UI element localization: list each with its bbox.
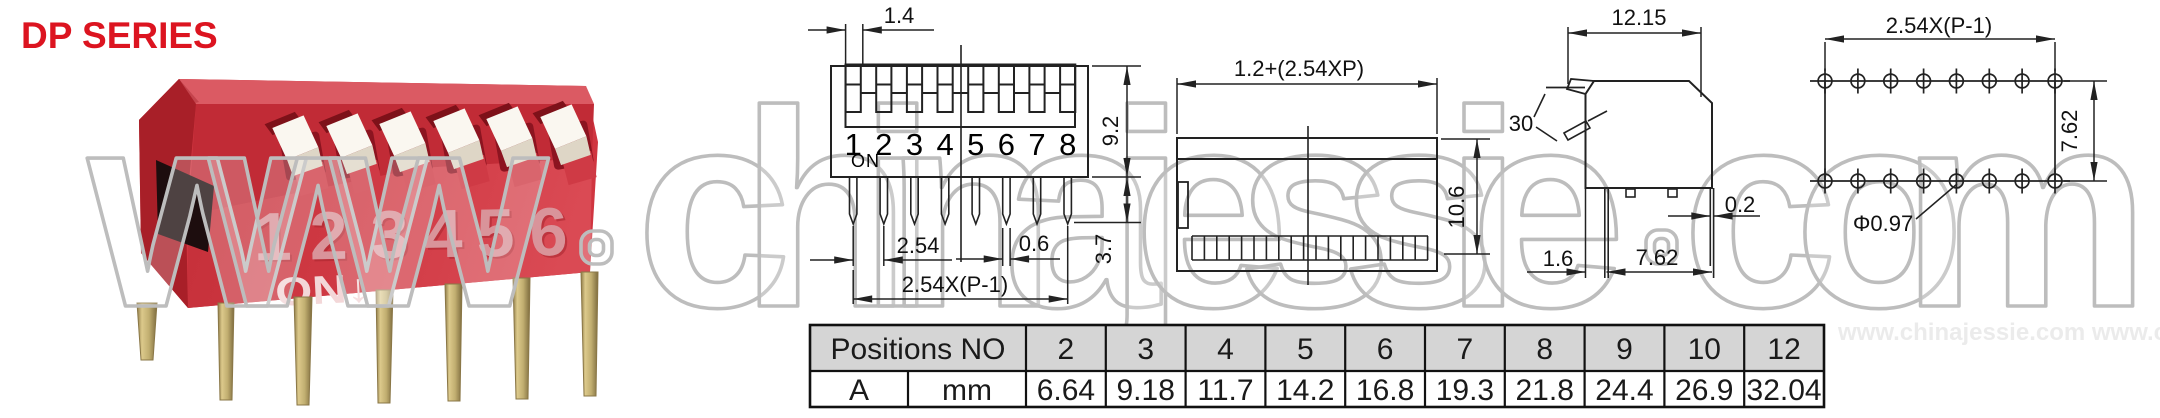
svg-text:8: 8 (1059, 127, 1076, 162)
svg-text:10: 10 (1688, 333, 1721, 366)
svg-text:6.64: 6.64 (1037, 374, 1095, 407)
svg-text:1.2+(2.54XP): 1.2+(2.54XP) (1234, 56, 1364, 81)
svg-text:3: 3 (1137, 333, 1154, 366)
svg-text:www.chinajessie.com www.chinaj: www.chinajessie.com www.chinajessie (1837, 319, 2160, 346)
svg-text:3: 3 (906, 127, 923, 162)
svg-text:24.4: 24.4 (1595, 374, 1653, 407)
svg-text:21.8: 21.8 (1516, 374, 1574, 407)
svg-text:16.8: 16.8 (1356, 374, 1414, 407)
svg-text:7: 7 (1457, 333, 1474, 366)
svg-text:2.54X(P-1): 2.54X(P-1) (902, 272, 1008, 297)
svg-text:6: 6 (1377, 333, 1394, 366)
svg-text:8: 8 (1536, 333, 1553, 366)
svg-text:7: 7 (1028, 127, 1045, 162)
svg-text:A: A (849, 374, 869, 407)
svg-text:19.3: 19.3 (1436, 374, 1494, 407)
svg-text:9: 9 (1616, 333, 1633, 366)
svg-text:12.15: 12.15 (1611, 5, 1666, 30)
svg-text:7.62: 7.62 (1636, 245, 1679, 270)
svg-text:30: 30 (1509, 111, 1533, 136)
svg-text:4: 4 (936, 127, 953, 162)
svg-text:6: 6 (998, 127, 1015, 162)
svg-text:11.7: 11.7 (1197, 374, 1253, 407)
svg-text:26.9: 26.9 (1675, 374, 1733, 407)
svg-text:3.7: 3.7 (1091, 234, 1116, 265)
svg-text:32.04: 32.04 (1747, 374, 1822, 407)
svg-text:14.2: 14.2 (1276, 374, 1334, 407)
svg-text:1.4: 1.4 (884, 3, 915, 28)
svg-text:1.6: 1.6 (1543, 246, 1574, 271)
svg-text:4: 4 (1217, 333, 1234, 366)
svg-text:2: 2 (1058, 333, 1075, 366)
svg-text:0.2: 0.2 (1725, 192, 1756, 217)
svg-text:2.54: 2.54 (897, 233, 940, 258)
svg-text:12: 12 (1767, 333, 1800, 366)
svg-text:5: 5 (967, 127, 984, 162)
svg-text:7.62: 7.62 (2057, 110, 2082, 153)
svg-text:mm: mm (942, 374, 992, 407)
svg-text:2.54X(P-1): 2.54X(P-1) (1886, 13, 1992, 38)
svg-text:0.6: 0.6 (1019, 231, 1050, 256)
svg-text:Positions NO: Positions NO (830, 333, 1005, 366)
svg-text:10.6: 10.6 (1444, 186, 1469, 229)
svg-text:www: www (84, 54, 549, 366)
svg-text:9.2: 9.2 (1098, 116, 1123, 147)
svg-text:Φ0.97: Φ0.97 (1853, 211, 1913, 236)
svg-text:ON: ON (851, 151, 880, 171)
svg-text:DP SERIES: DP SERIES (21, 15, 218, 56)
svg-text:9.18: 9.18 (1117, 374, 1175, 407)
svg-text:5: 5 (1297, 333, 1314, 366)
